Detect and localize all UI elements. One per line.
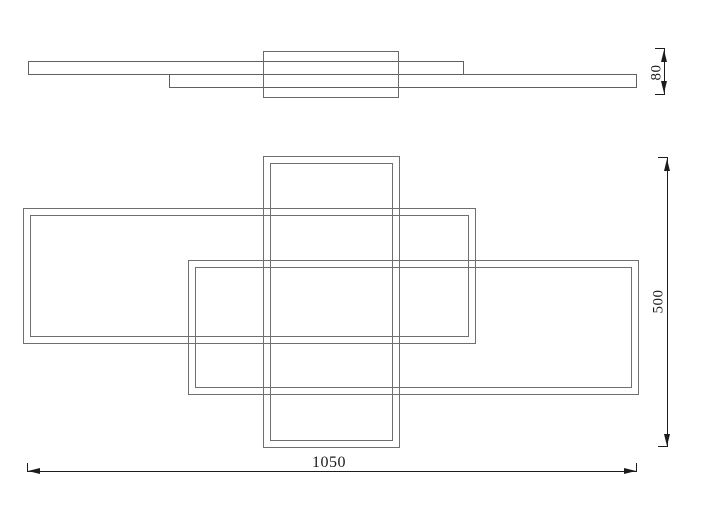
dim-width-label: 1050 xyxy=(301,455,357,471)
dim-width-tick-right xyxy=(636,463,637,471)
front-view: 500 1050 xyxy=(0,130,720,510)
dim-height-line xyxy=(667,157,668,447)
front-frame-center-inner xyxy=(270,163,393,441)
dim-height-label: 500 xyxy=(652,277,667,327)
arrow-up-icon xyxy=(664,159,670,171)
side-canopy-box xyxy=(263,51,399,98)
arrow-down-icon xyxy=(664,434,670,446)
dim-width-line xyxy=(27,471,637,472)
arrow-right-icon xyxy=(624,468,636,474)
side-bar-right xyxy=(169,74,637,88)
technical-drawing-canvas: 80 500 xyxy=(0,0,720,510)
side-view: 80 xyxy=(0,0,720,130)
dim-depth-label: 80 xyxy=(650,53,665,93)
front-frame-right xyxy=(188,260,639,395)
front-frame-center xyxy=(263,156,400,448)
front-frame-right-inner xyxy=(195,267,632,388)
arrow-left-icon xyxy=(28,468,40,474)
